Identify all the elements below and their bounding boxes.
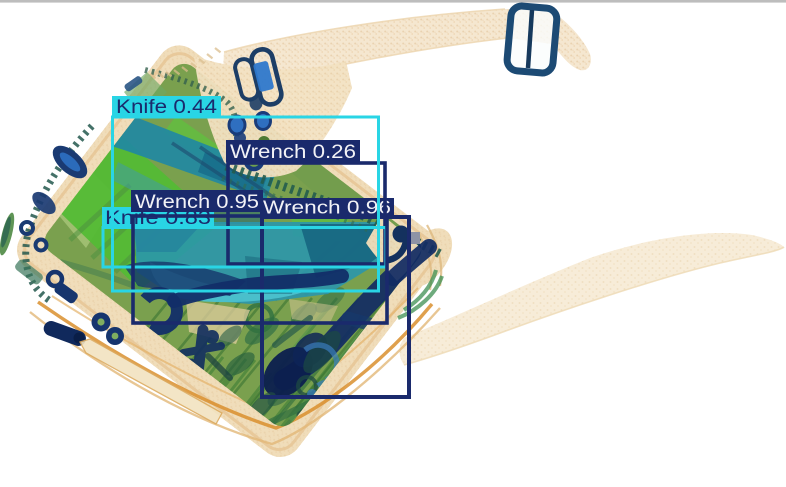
svg-text:Knife 0.44: Knife 0.44 [116,97,217,118]
svg-text:Wrench 0.95: Wrench 0.95 [135,192,259,213]
svg-text:Wrench 0.26: Wrench 0.26 [230,142,356,163]
